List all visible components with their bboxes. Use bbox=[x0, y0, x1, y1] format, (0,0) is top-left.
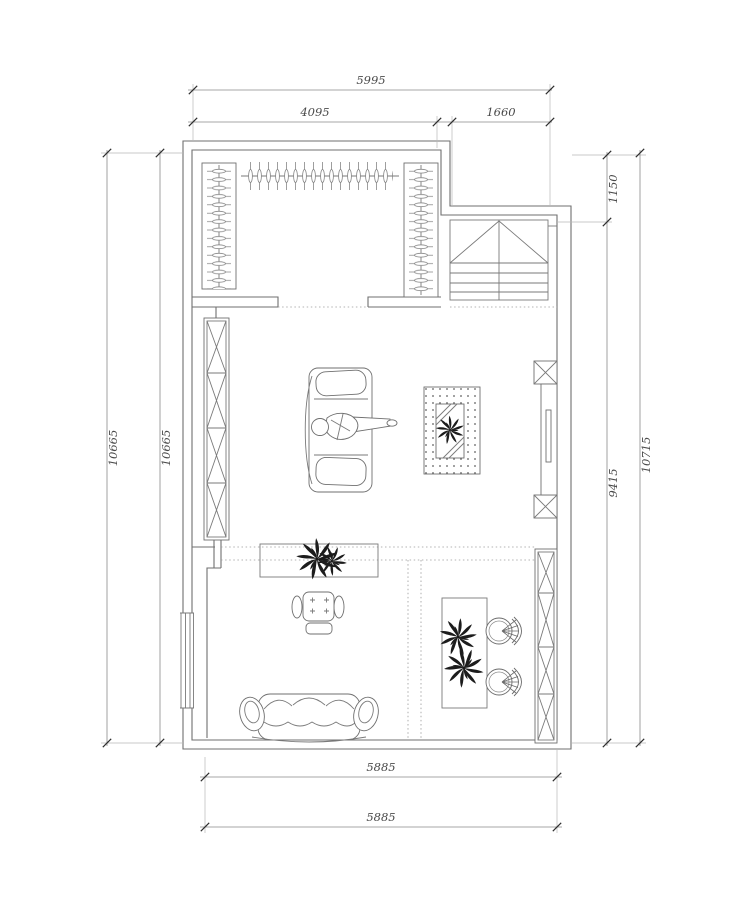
hangers-top bbox=[246, 160, 393, 192]
exterior-walls bbox=[183, 141, 571, 749]
tv-screen bbox=[546, 410, 551, 462]
chaise-lounge-person bbox=[305, 368, 397, 492]
dim-label-left-inner: 10665 bbox=[159, 430, 173, 467]
console-table-plant bbox=[260, 538, 378, 580]
storage-cabinet-right bbox=[535, 549, 557, 743]
dimension-bottom-outer: 5885 bbox=[200, 810, 562, 831]
dimension-bottom-inner: 5885 bbox=[200, 760, 562, 781]
pillow-top bbox=[315, 370, 366, 397]
person-hand bbox=[387, 420, 397, 426]
dim-label-bottom-inner: 5885 bbox=[366, 760, 395, 774]
armrest-left bbox=[292, 596, 302, 618]
floor-plan-drawing: 5995 4095 1660 10665 10665 1150 9415 107… bbox=[0, 0, 740, 910]
dimension-right-outer: 10715 bbox=[636, 149, 653, 747]
dimension-left-inner: 10665 bbox=[156, 149, 173, 747]
hangers-right bbox=[408, 167, 434, 293]
plant-table bbox=[436, 598, 491, 708]
window bbox=[180, 613, 194, 708]
armchair-ottoman bbox=[292, 592, 344, 634]
tv-unit bbox=[534, 361, 557, 518]
dimension-top-overall: 5995 bbox=[188, 73, 554, 94]
dimension-top-segments: 4095 1660 bbox=[188, 105, 554, 126]
seat bbox=[303, 592, 334, 621]
potted-plant bbox=[436, 615, 479, 658]
dim-label-bottom-outer: 5885 bbox=[366, 810, 395, 824]
dimension-right-inner: 1150 9415 bbox=[603, 151, 620, 747]
dim-label-top-overall: 5995 bbox=[356, 73, 385, 87]
potted-plant bbox=[436, 641, 491, 696]
dim-label-left-outer: 10665 bbox=[106, 430, 120, 467]
armrest-right bbox=[334, 596, 344, 618]
hangers-left bbox=[206, 167, 232, 289]
dim-label-top-left: 4095 bbox=[299, 105, 329, 119]
person-head bbox=[312, 419, 329, 436]
fan-back-chair bbox=[486, 668, 522, 696]
fan-back-chair bbox=[486, 617, 522, 645]
dim-label-right-lower: 9415 bbox=[606, 468, 620, 497]
coffee-table-rug bbox=[424, 387, 480, 474]
staircase bbox=[450, 220, 557, 300]
dim-label-top-right: 1660 bbox=[486, 105, 515, 119]
dimension-left-outer: 10665 bbox=[103, 149, 120, 747]
pillow-bottom bbox=[316, 457, 367, 486]
floor-plan-canvas: 5995 4095 1660 10665 10665 1150 9415 107… bbox=[0, 0, 740, 910]
dim-label-right-outer: 10715 bbox=[639, 437, 653, 474]
walk-in-closet bbox=[202, 160, 438, 297]
sofa bbox=[236, 694, 382, 742]
shelf-cabinet-left bbox=[204, 307, 229, 540]
dim-label-right-upper: 1150 bbox=[606, 174, 620, 203]
ottoman bbox=[306, 623, 332, 634]
